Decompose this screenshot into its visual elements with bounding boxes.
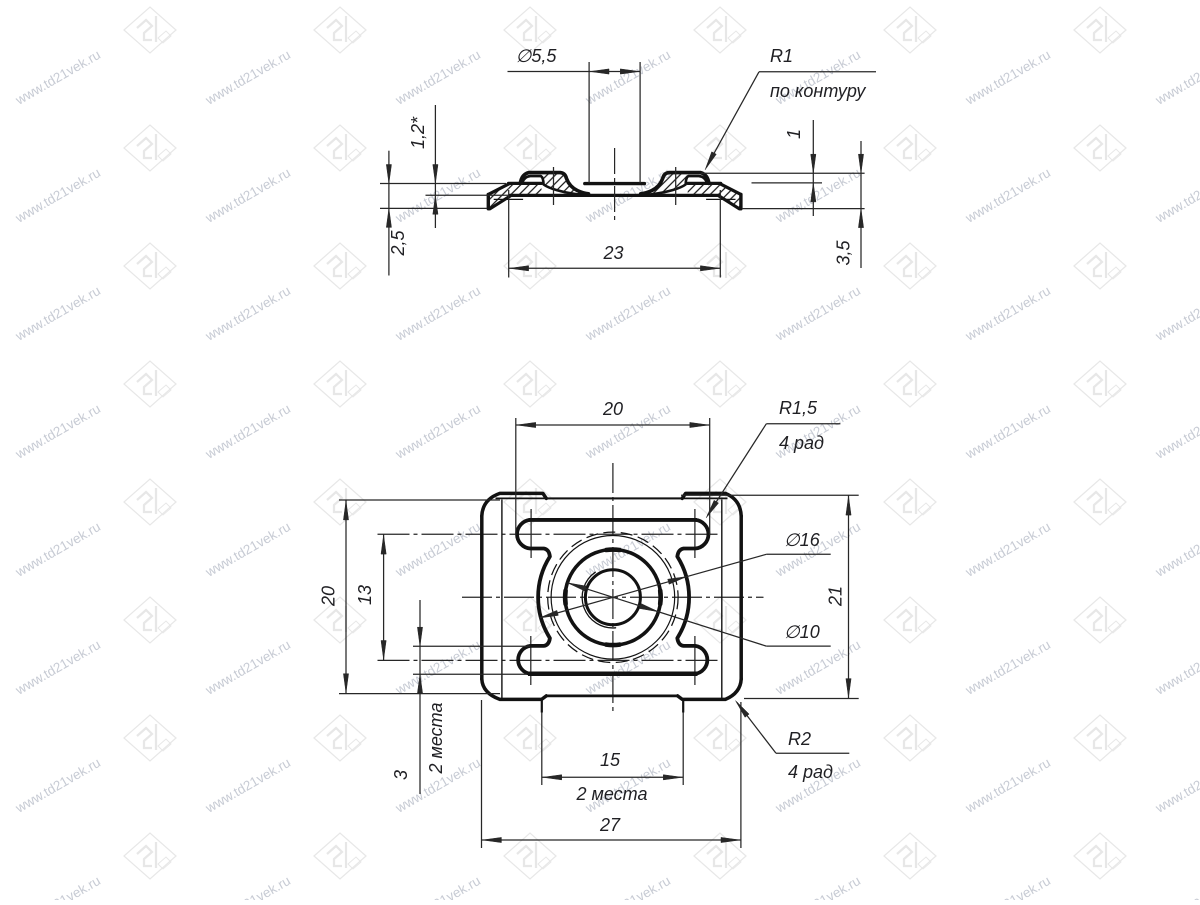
- svg-text:20: 20: [602, 399, 623, 419]
- svg-text:15: 15: [600, 750, 621, 770]
- svg-text:∅10: ∅10: [784, 622, 820, 642]
- svg-text:3,5: 3,5: [834, 240, 854, 266]
- svg-text:23: 23: [602, 243, 623, 263]
- svg-text:4 рад: 4 рад: [788, 762, 833, 782]
- svg-text:21: 21: [826, 586, 846, 607]
- svg-text:2,5: 2,5: [388, 230, 408, 257]
- svg-text:1: 1: [784, 129, 804, 139]
- svg-text:∅5,5: ∅5,5: [516, 46, 558, 66]
- svg-text:∅16: ∅16: [784, 530, 821, 550]
- svg-text:R1,5: R1,5: [779, 398, 818, 418]
- svg-text:2 места: 2 места: [426, 703, 446, 775]
- svg-text:1,2*: 1,2*: [408, 116, 428, 149]
- svg-text:R2: R2: [788, 729, 811, 749]
- svg-text:3: 3: [391, 770, 411, 780]
- svg-text:4 рад: 4 рад: [779, 433, 824, 453]
- svg-text:13: 13: [355, 585, 375, 605]
- svg-text:20: 20: [319, 586, 339, 607]
- svg-text:R1: R1: [770, 46, 793, 66]
- svg-text:27: 27: [599, 815, 621, 835]
- svg-text:2 места: 2 места: [576, 784, 648, 804]
- svg-text:по контуру: по контуру: [770, 81, 866, 101]
